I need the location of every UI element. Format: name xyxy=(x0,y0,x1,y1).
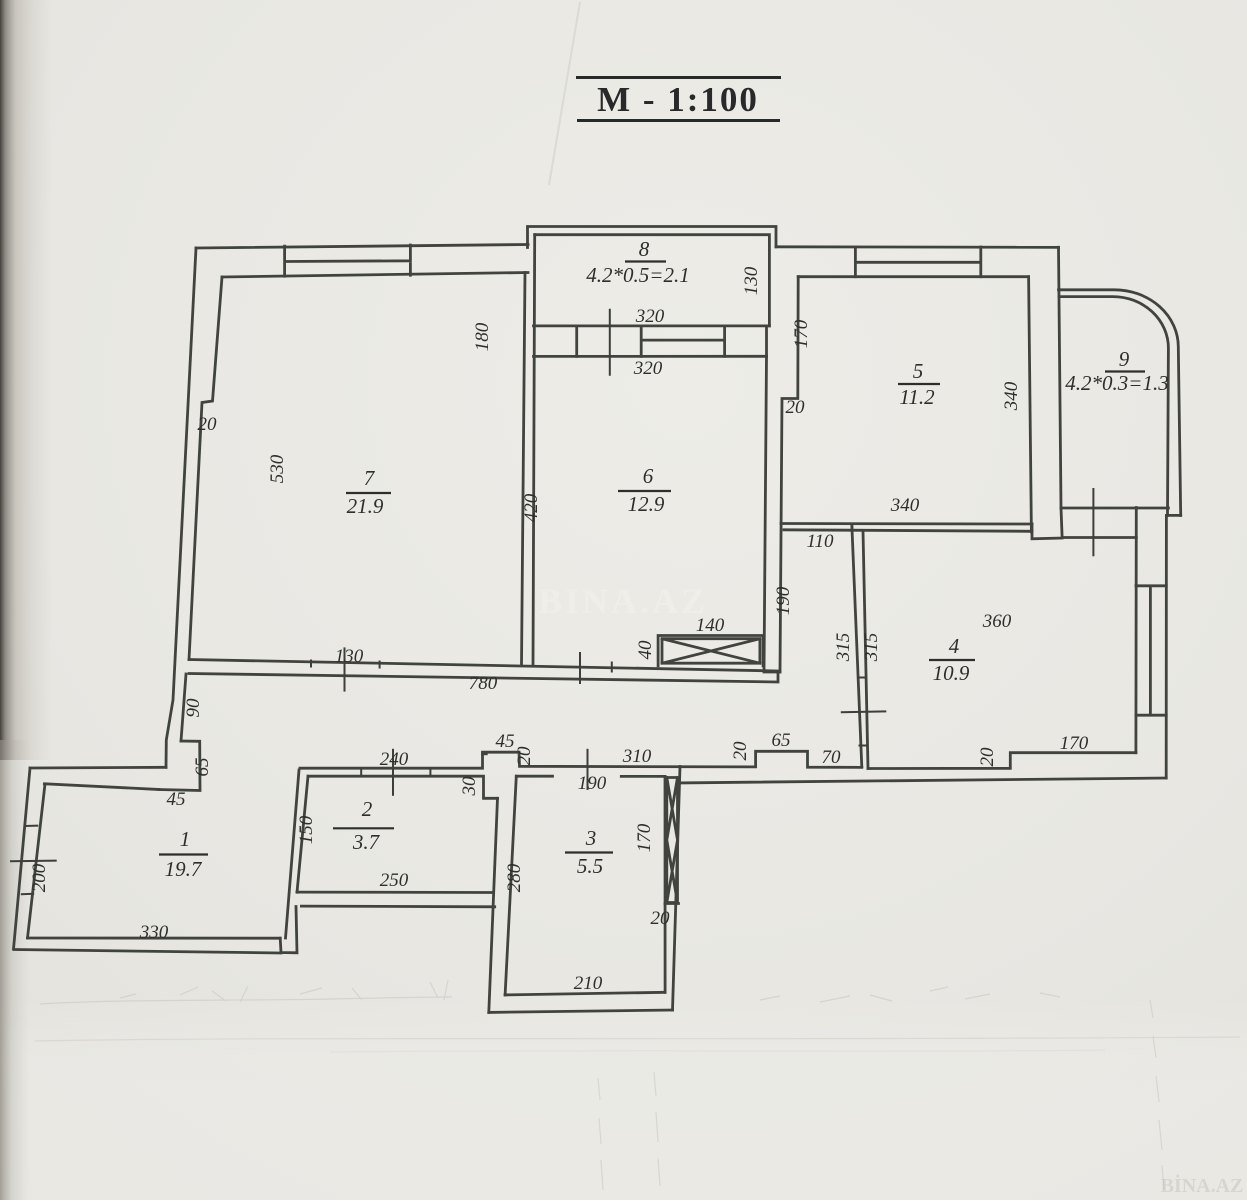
svg-text:8: 8 xyxy=(639,237,650,261)
svg-text:3.7: 3.7 xyxy=(352,830,381,854)
svg-text:250: 250 xyxy=(380,870,409,891)
svg-text:5.5: 5.5 xyxy=(577,854,603,878)
svg-text:130: 130 xyxy=(741,266,762,295)
svg-text:BINA.AZ: BINA.AZ xyxy=(538,581,708,621)
svg-text:9: 9 xyxy=(1119,347,1130,371)
svg-text:6: 6 xyxy=(643,464,654,488)
svg-text:45: 45 xyxy=(167,789,186,810)
svg-text:340: 340 xyxy=(890,495,920,516)
svg-text:310: 310 xyxy=(622,746,652,767)
svg-text:280: 280 xyxy=(504,863,525,892)
svg-text:150: 150 xyxy=(296,815,317,844)
svg-text:65: 65 xyxy=(772,730,791,751)
svg-text:530: 530 xyxy=(267,454,288,483)
svg-text:20: 20 xyxy=(786,397,806,418)
svg-text:10.9: 10.9 xyxy=(933,661,970,685)
svg-text:30: 30 xyxy=(459,776,480,797)
svg-text:3: 3 xyxy=(585,826,597,850)
svg-text:65: 65 xyxy=(192,758,213,777)
svg-text:360: 360 xyxy=(982,611,1012,632)
svg-text:200: 200 xyxy=(29,863,50,892)
svg-text:210: 210 xyxy=(574,973,603,994)
svg-text:45: 45 xyxy=(496,731,515,752)
svg-text:4.2*0.5=2.1: 4.2*0.5=2.1 xyxy=(586,263,689,287)
svg-text:170: 170 xyxy=(1060,733,1089,754)
svg-text:780: 780 xyxy=(469,673,498,694)
svg-text:40: 40 xyxy=(635,640,656,660)
svg-text:240: 240 xyxy=(380,749,409,770)
svg-text:1: 1 xyxy=(180,827,191,851)
svg-text:170: 170 xyxy=(791,319,812,348)
svg-text:20: 20 xyxy=(651,908,671,929)
svg-text:21.9: 21.9 xyxy=(347,494,384,518)
svg-text:19.7: 19.7 xyxy=(165,857,203,881)
svg-text:315: 315 xyxy=(861,633,882,663)
svg-text:420: 420 xyxy=(521,493,542,522)
svg-text:7: 7 xyxy=(364,466,376,490)
svg-text:190: 190 xyxy=(773,586,794,615)
svg-text:5: 5 xyxy=(913,359,924,383)
svg-text:340: 340 xyxy=(1001,381,1022,411)
svg-text:20: 20 xyxy=(198,414,218,435)
svg-text:12.9: 12.9 xyxy=(628,492,665,516)
svg-text:170: 170 xyxy=(634,823,655,852)
svg-text:190: 190 xyxy=(578,773,607,794)
svg-text:70: 70 xyxy=(822,747,842,768)
svg-text:M - 1:100: M - 1:100 xyxy=(597,80,759,119)
svg-text:330: 330 xyxy=(139,922,169,943)
svg-text:20: 20 xyxy=(977,747,998,767)
svg-text:20: 20 xyxy=(730,741,751,761)
svg-text:180: 180 xyxy=(472,322,493,351)
svg-text:BİNA.AZ: BİNA.AZ xyxy=(1161,1173,1244,1197)
svg-text:4.2*0.3=1.3: 4.2*0.3=1.3 xyxy=(1065,371,1168,395)
svg-text:20: 20 xyxy=(514,746,535,766)
svg-text:2: 2 xyxy=(362,797,373,821)
svg-text:320: 320 xyxy=(635,306,665,327)
svg-text:110: 110 xyxy=(806,531,834,552)
svg-text:320: 320 xyxy=(633,358,663,379)
svg-text:90: 90 xyxy=(183,698,204,718)
svg-text:130: 130 xyxy=(335,646,364,667)
svg-text:11.2: 11.2 xyxy=(899,385,935,409)
svg-text:315: 315 xyxy=(833,633,854,663)
svg-text:4: 4 xyxy=(949,634,960,658)
